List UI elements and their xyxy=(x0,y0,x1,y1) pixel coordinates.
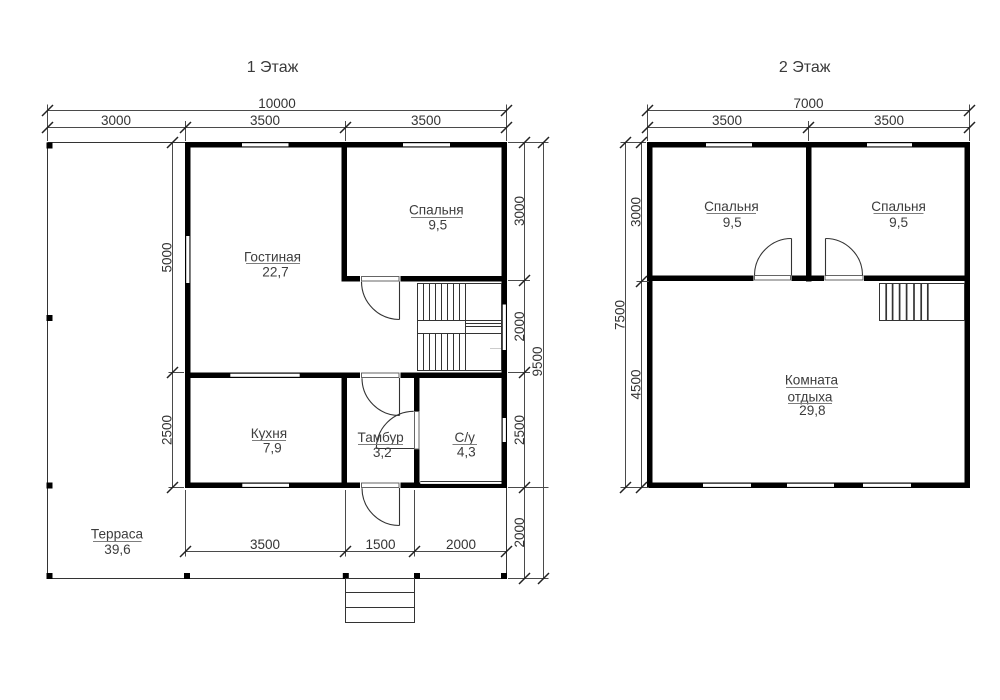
svg-text:2000: 2000 xyxy=(446,537,476,552)
svg-text:7,9: 7,9 xyxy=(263,441,282,456)
svg-text:3000: 3000 xyxy=(101,113,131,128)
svg-text:9,5: 9,5 xyxy=(889,215,908,230)
svg-text:3000: 3000 xyxy=(512,196,527,226)
svg-text:29,8: 29,8 xyxy=(799,403,825,418)
svg-text:3500: 3500 xyxy=(250,537,280,552)
svg-text:1500: 1500 xyxy=(365,537,395,552)
svg-text:5000: 5000 xyxy=(160,242,175,272)
svg-text:2 Этаж: 2 Этаж xyxy=(779,59,831,76)
svg-text:3500: 3500 xyxy=(411,113,441,128)
svg-text:9500: 9500 xyxy=(530,346,545,376)
svg-text:7500: 7500 xyxy=(613,300,628,330)
svg-text:7000: 7000 xyxy=(793,96,823,111)
svg-text:Спальня: Спальня xyxy=(871,199,926,214)
svg-text:3000: 3000 xyxy=(629,197,644,227)
svg-text:10000: 10000 xyxy=(258,96,296,111)
svg-text:22,7: 22,7 xyxy=(262,265,288,280)
svg-text:9,5: 9,5 xyxy=(428,218,447,233)
svg-text:2000: 2000 xyxy=(512,517,527,547)
svg-text:Спальня: Спальня xyxy=(409,203,464,218)
svg-text:Тамбур: Тамбур xyxy=(358,430,404,445)
svg-text:3,2: 3,2 xyxy=(373,445,392,460)
svg-text:4500: 4500 xyxy=(629,369,644,399)
svg-text:Терраса: Терраса xyxy=(91,527,144,542)
svg-text:3500: 3500 xyxy=(712,113,742,128)
svg-text:2500: 2500 xyxy=(512,415,527,445)
svg-text:Кухня: Кухня xyxy=(251,426,287,441)
svg-text:С/у: С/у xyxy=(455,430,476,445)
svg-text:Гостиная: Гостиная xyxy=(244,250,301,265)
svg-text:39,6: 39,6 xyxy=(104,542,130,557)
svg-text:2000: 2000 xyxy=(512,311,527,341)
svg-text:3500: 3500 xyxy=(250,113,280,128)
svg-text:Спальня: Спальня xyxy=(704,199,759,214)
svg-text:3500: 3500 xyxy=(874,113,904,128)
svg-text:9,5: 9,5 xyxy=(723,215,742,230)
svg-text:Комната: Комната xyxy=(785,373,839,388)
svg-text:4,3: 4,3 xyxy=(457,445,476,460)
svg-text:1 Этаж: 1 Этаж xyxy=(247,59,299,76)
svg-text:2500: 2500 xyxy=(160,415,175,445)
